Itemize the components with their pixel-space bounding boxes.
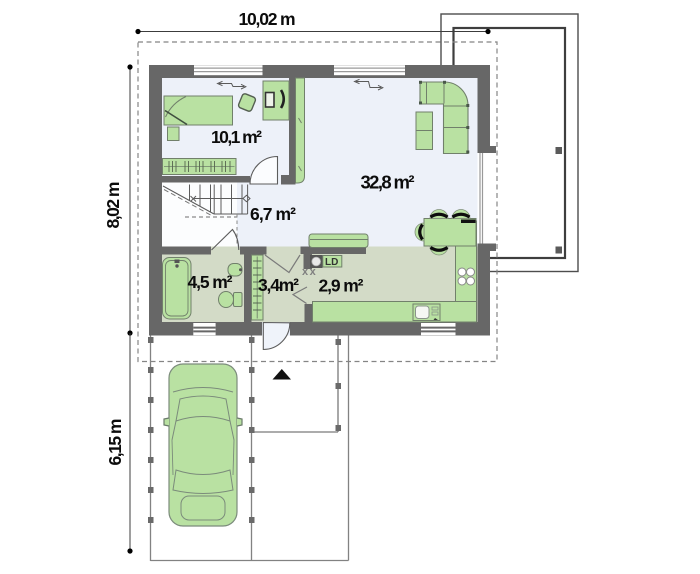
- svg-text:LD: LD: [325, 257, 338, 268]
- svg-text:2,9 m²: 2,9 m²: [319, 276, 364, 296]
- svg-text:4,5 m²: 4,5 m²: [188, 272, 233, 292]
- svg-text:10,02 m: 10,02 m: [239, 9, 296, 29]
- svg-text:32,8 m²: 32,8 m²: [361, 172, 415, 193]
- svg-text:3,4m²: 3,4m²: [258, 275, 299, 295]
- svg-text:6,7 m²: 6,7 m²: [250, 204, 296, 224]
- svg-text:6,15 m: 6,15 m: [105, 419, 125, 466]
- svg-text:10,1 m²: 10,1 m²: [211, 127, 262, 147]
- svg-text:8,02 m: 8,02 m: [103, 182, 123, 229]
- svg-text:xx: xx: [302, 266, 317, 278]
